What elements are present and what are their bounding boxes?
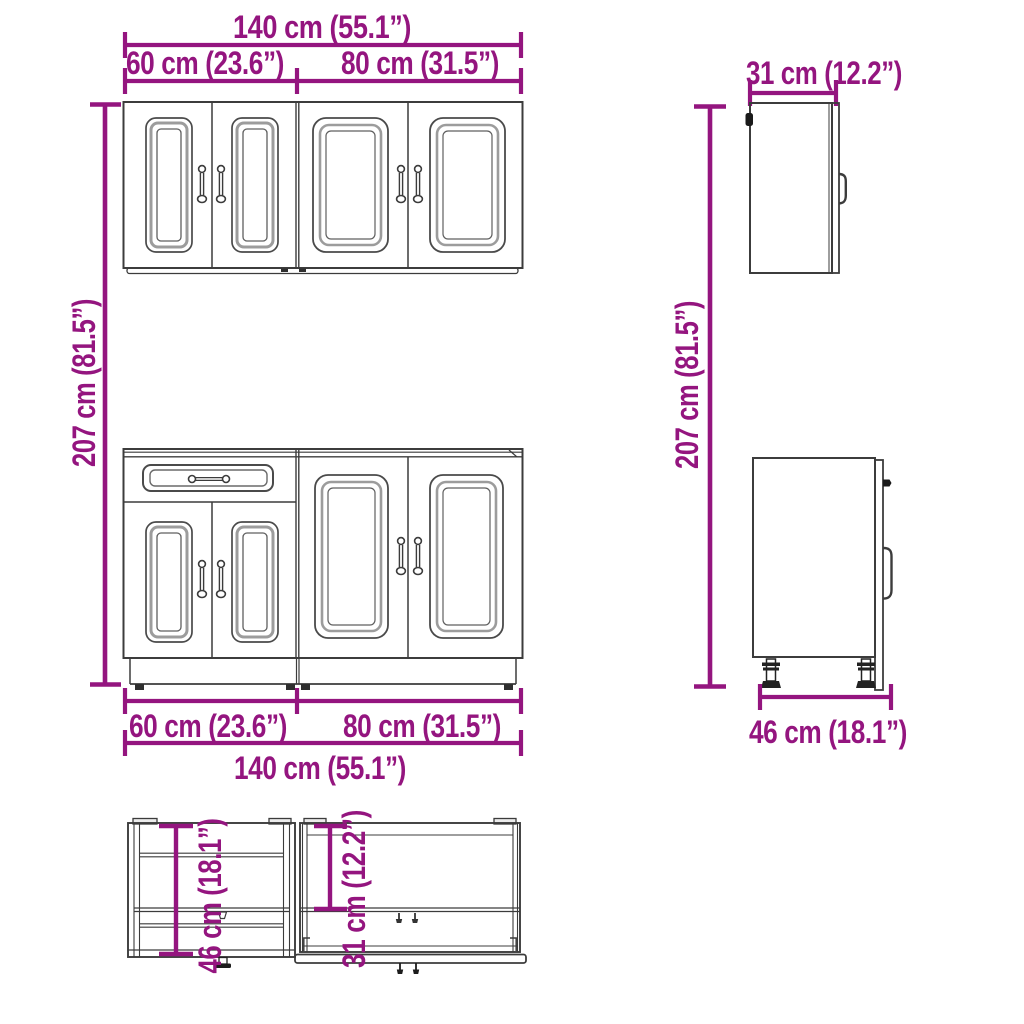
dimension-diagram: 140 cm (55.1”) 60 cm (23.6”) 80 cm (31.5… [0, 0, 1024, 1024]
base-cabinet-side-view: 46 cm (18.1”) [749, 458, 907, 750]
dimension-height-left-group: 207 cm (81.5”) [66, 103, 121, 686]
base-side-handle [884, 548, 892, 599]
dim-label-base-depth: 46 cm (18.1”) [749, 714, 907, 750]
dimension-top-group: 140 cm (55.1”) 60 cm (23.6”) 80 cm (31.5… [123, 9, 523, 94]
base-side-feet [761, 659, 876, 688]
dim-label-height-left: 207 cm (81.5”) [66, 299, 102, 467]
dim-label-right-width-top: 80 cm (31.5”) [341, 45, 499, 81]
dim-label-topview-base-depth: 46 cm (18.1”) [192, 819, 228, 974]
diagram-svg: 140 cm (55.1”) 60 cm (23.6”) 80 cm (31.5… [0, 0, 1024, 1024]
dimension-bottom-group: 60 cm (23.6”) 80 cm (31.5”) 140 cm (55.1… [123, 688, 523, 786]
wall-right-door-panels [313, 118, 505, 252]
dim-label-topview-wall-depth: 31 cm (12.2”) [336, 810, 372, 968]
base-right-door-panels [315, 475, 503, 638]
dim-label-wall-depth: 31 cm (12.2”) [746, 55, 902, 91]
base-drawer-front [143, 465, 273, 491]
dim-label-left-width-top: 60 cm (23.6”) [126, 45, 284, 81]
base-plinth [130, 658, 516, 690]
dim-label-total-width-top: 140 cm (55.1”) [233, 9, 411, 45]
base-cabinet-top-view: 46 cm (18.1”) [128, 819, 295, 974]
dim-label-right-width-bottom: 80 cm (31.5”) [343, 708, 501, 744]
base-cabinets-front-view [124, 449, 523, 690]
wall-cabinets-front-view [124, 102, 523, 274]
dim-label-left-width-bottom: 60 cm (23.6”) [129, 708, 287, 744]
dimension-height-right-group: 207 cm (81.5”) [669, 105, 726, 688]
dim-label-height-right: 207 cm (81.5”) [669, 301, 705, 469]
wall-cabinet-side-view: 31 cm (12.2”) [746, 55, 903, 273]
topview-hinge-marks [396, 913, 418, 923]
wall-cabinet-top-view: 31 cm (12.2”) [295, 810, 526, 974]
dim-label-total-width-bottom: 140 cm (55.1”) [234, 750, 406, 786]
topview-door-hinges [397, 963, 419, 974]
